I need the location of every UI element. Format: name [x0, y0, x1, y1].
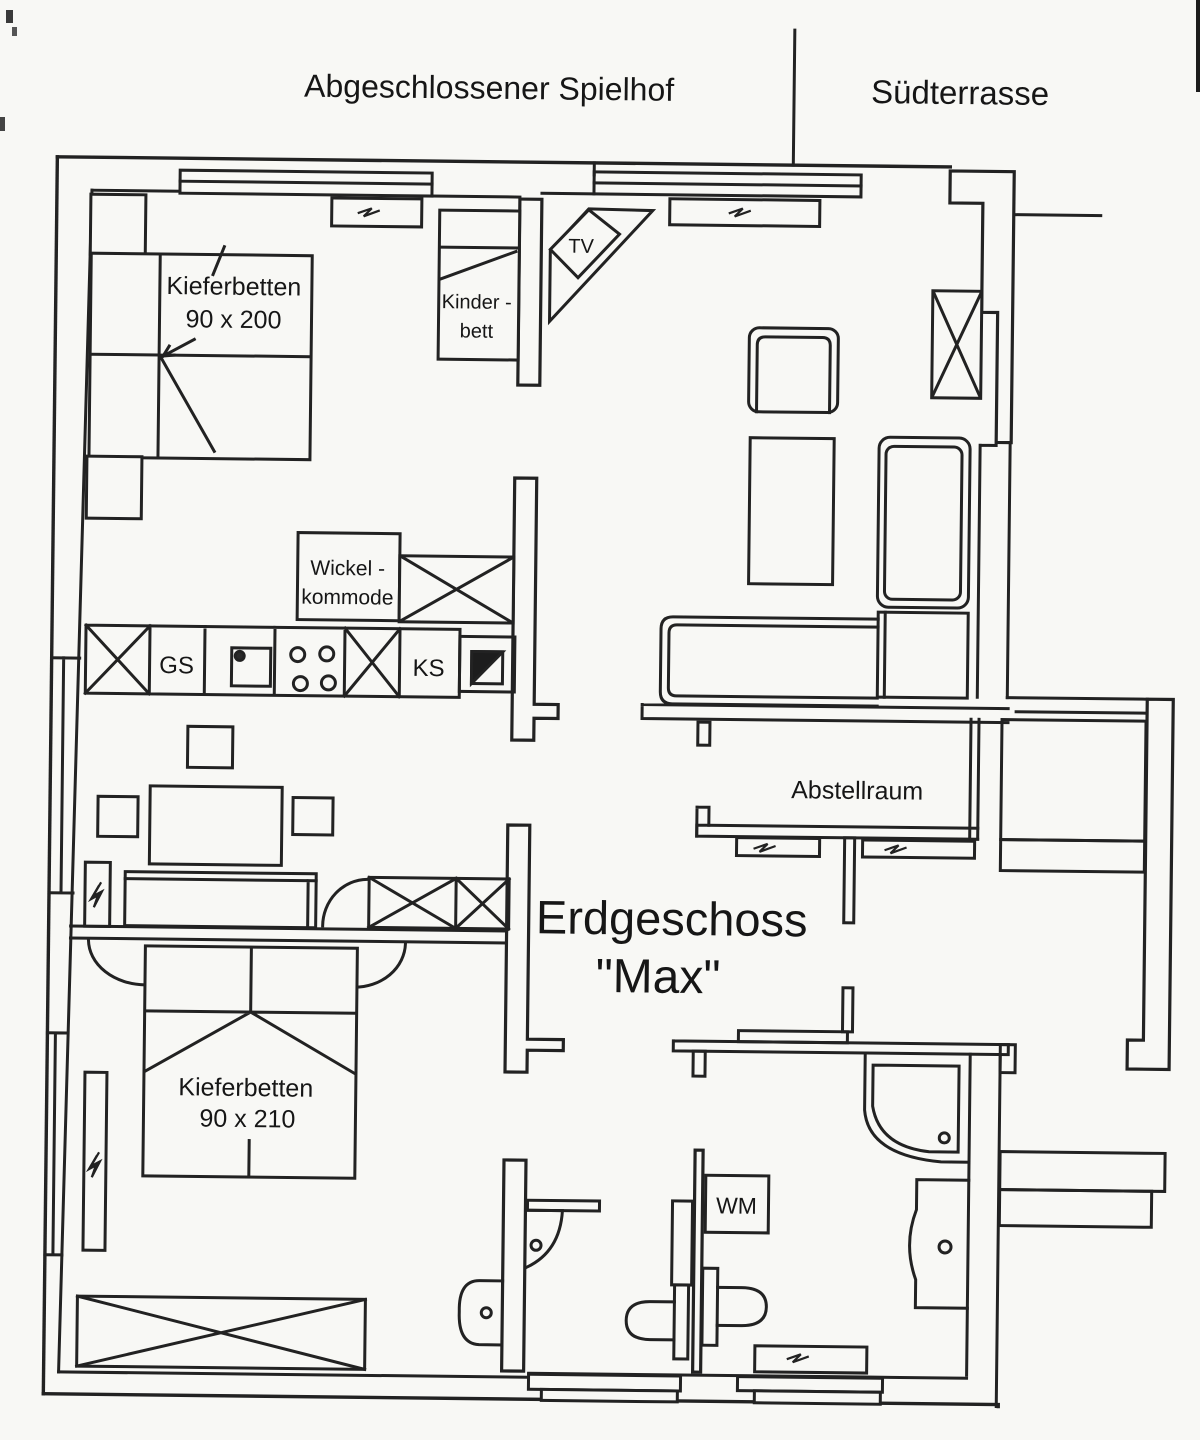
svg-text:Erdgeschoss: Erdgeschoss — [536, 890, 808, 946]
svg-text:Wickel -: Wickel - — [310, 557, 385, 581]
svg-text:90 x 200: 90 x 200 — [185, 305, 281, 334]
svg-text:Kinder -: Kinder - — [442, 291, 512, 314]
svg-text:Südterrasse: Südterrasse — [871, 73, 1049, 112]
svg-text:TV: TV — [568, 236, 594, 258]
svg-text:Abstellraum: Abstellraum — [791, 776, 923, 805]
svg-text:KS: KS — [412, 655, 444, 682]
svg-text:90 x 210: 90 x 210 — [199, 1104, 295, 1133]
svg-text:Abgeschlossener Spielhof: Abgeschlossener Spielhof — [304, 68, 675, 108]
svg-text:Kieferbetten: Kieferbetten — [178, 1073, 313, 1103]
svg-text:Kieferbetten: Kieferbetten — [166, 272, 301, 302]
svg-text:WM: WM — [716, 1192, 757, 1218]
svg-text:GS: GS — [159, 652, 194, 679]
svg-text:bett: bett — [460, 320, 494, 342]
svg-text:kommode: kommode — [301, 586, 393, 610]
svg-text:"Max": "Max" — [595, 950, 720, 1004]
